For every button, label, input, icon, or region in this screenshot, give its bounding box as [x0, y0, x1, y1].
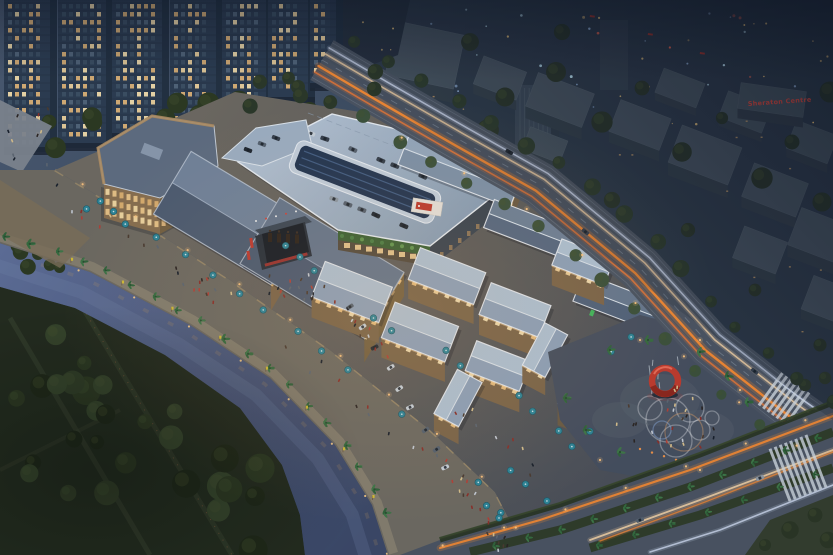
atmosphere-overlays: [0, 0, 833, 555]
architectural-rendering: Sheraton Centre: [0, 0, 833, 555]
rendering-canvas: Sheraton Centre: [0, 0, 833, 555]
